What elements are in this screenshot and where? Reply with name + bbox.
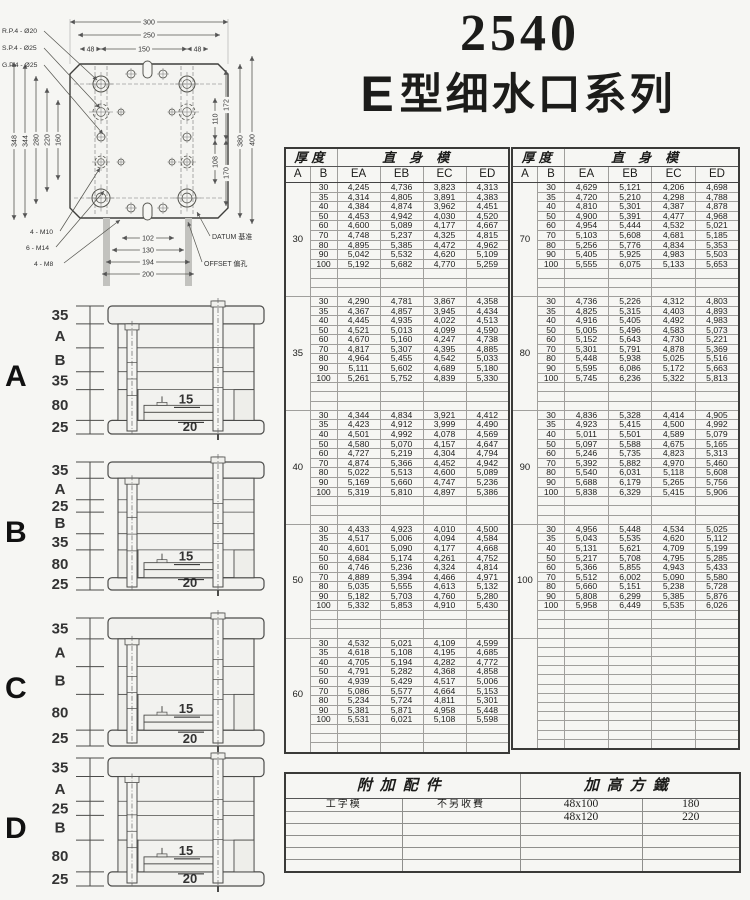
- price-cell: 80: [537, 582, 564, 592]
- accessory-cell: 48x120: [520, 811, 642, 824]
- price-cell: 5,226: [608, 296, 652, 306]
- a-thickness-cell: 80: [512, 296, 537, 410]
- plate-dim-label: 35: [52, 620, 69, 637]
- price-cell: 4,452: [423, 458, 466, 468]
- price-cell: 4,445: [337, 316, 380, 326]
- price-cell: 70: [537, 572, 564, 582]
- plate-dim-label: 80: [52, 848, 69, 865]
- price-cell: 5,086: [337, 686, 380, 696]
- price-cell: 5,118: [652, 468, 696, 478]
- price-cell: 5,033: [466, 354, 509, 364]
- empty-cell: [695, 287, 739, 296]
- price-cell: 40: [310, 657, 337, 667]
- table-row: [512, 647, 739, 656]
- price-cell: 5,512: [565, 572, 609, 582]
- price-cell: 5,386: [466, 487, 509, 497]
- price-cell: [652, 730, 696, 739]
- price-cell: 4,580: [337, 439, 380, 449]
- price-cell: 40: [310, 430, 337, 440]
- empty-cell: [423, 611, 466, 620]
- price-cell: 5,588: [608, 439, 652, 449]
- table-row: 60304,5325,0214,1094,599: [285, 638, 509, 648]
- price-cell: 3,867: [423, 296, 466, 306]
- page-title-series: E型细水口系列: [292, 60, 744, 123]
- price-cell: 4,788: [695, 192, 739, 202]
- dim-text: 172: [223, 99, 230, 111]
- price-cell: 4,814: [466, 563, 509, 573]
- hole-callout: S.P.4 - Ø25: [2, 45, 37, 52]
- filler-row: [285, 611, 509, 620]
- dim-text: 150: [138, 46, 150, 53]
- table-row: 35304,2904,7813,8674,358: [285, 296, 509, 306]
- price-cell: 40: [537, 202, 564, 212]
- price-cell: 3,999: [423, 420, 466, 430]
- price-cell: [537, 693, 564, 702]
- price-cell: 4,590: [466, 325, 509, 335]
- price-cell: [608, 684, 652, 693]
- header-row-groups: 厚度直身模: [512, 148, 739, 167]
- price-cell: [652, 638, 696, 647]
- price-cell: 100: [537, 373, 564, 383]
- price-cell: 5,090: [652, 572, 696, 582]
- plate-dim-label: 25: [52, 871, 69, 888]
- mold-section-svg: 35AB80251520: [14, 610, 286, 762]
- price-cell: 90: [310, 250, 337, 260]
- plate-dim-label: A: [55, 481, 66, 498]
- price-cell: 4,312: [652, 296, 696, 306]
- price-cell: 5,513: [380, 468, 423, 478]
- price-cell: 4,885: [466, 344, 509, 354]
- price-cell: 4,314: [337, 192, 380, 202]
- price-cell: [608, 657, 652, 666]
- table-row: 504,5215,0134,0994,590: [285, 325, 509, 335]
- price-cell: [537, 647, 564, 656]
- price-cell: 5,540: [565, 468, 609, 478]
- empty-cell: [565, 392, 609, 401]
- price-cell: 4,752: [466, 553, 509, 563]
- table-row: 804,8955,3854,4724,962: [285, 240, 509, 250]
- filler-row: [512, 401, 739, 410]
- price-cell: 5,855: [608, 563, 652, 573]
- price-cell: 30: [310, 296, 337, 306]
- price-cell: [565, 721, 609, 730]
- accessory-cell: [642, 836, 740, 848]
- price-cell: [652, 721, 696, 730]
- empty-cell: [565, 611, 609, 620]
- price-cell: 4,157: [423, 439, 466, 449]
- inner-dim-20: 20: [183, 871, 197, 886]
- price-cell: [537, 702, 564, 711]
- empty-cell: [310, 383, 337, 392]
- a-thickness-cell: 70: [512, 183, 537, 297]
- plate-dim-label: 25: [52, 498, 69, 515]
- price-cell: 5,217: [565, 553, 609, 563]
- price-cell: [695, 712, 739, 721]
- empty-cell: [380, 497, 423, 506]
- price-cell: 70: [537, 344, 564, 354]
- table-row: 404,5014,9924,0784,569: [285, 430, 509, 440]
- price-cell: 5,415: [652, 487, 696, 497]
- price-cell: 6,075: [608, 259, 652, 269]
- empty-cell: [652, 506, 696, 515]
- plate-dim-label: A: [55, 781, 66, 798]
- accessory-cell: 220: [642, 811, 740, 824]
- price-cell: 90: [537, 591, 564, 601]
- price-cell: 5,073: [695, 325, 739, 335]
- price-cell: 4,520: [466, 211, 509, 221]
- empty-cell: [380, 383, 423, 392]
- empty-cell: [466, 515, 509, 524]
- plate-dim-label: 35: [52, 759, 69, 776]
- price-cell: [652, 647, 696, 656]
- empty-cell: [423, 743, 466, 753]
- dim-text: 48: [87, 46, 95, 53]
- empty-cell: [466, 383, 509, 392]
- price-cell: 60: [310, 335, 337, 345]
- empty-cell: [466, 506, 509, 515]
- price-cell: 40: [310, 543, 337, 553]
- price-cell: 5,394: [380, 572, 423, 582]
- price-cell: 5,042: [337, 250, 380, 260]
- table-row: 504,7915,2824,3684,858: [285, 667, 509, 677]
- empty-cell: [695, 383, 739, 392]
- dim-text: 200: [142, 271, 154, 278]
- price-cell: 4,290: [337, 296, 380, 306]
- table-row: 905,5956,0865,1725,663: [512, 364, 739, 374]
- empty-cell: [695, 269, 739, 278]
- plate-dim-label: 35: [52, 462, 69, 479]
- empty-cell: [337, 401, 380, 410]
- inner-dim-20: 20: [183, 575, 197, 590]
- price-cell: 5,608: [695, 468, 739, 478]
- empty-cell: [652, 269, 696, 278]
- price-cell: [537, 657, 564, 666]
- price-cell: 35: [310, 192, 337, 202]
- empty-cell: [310, 401, 337, 410]
- price-cell: [652, 675, 696, 684]
- price-cell: 5,433: [695, 563, 739, 573]
- price-cell: 4,490: [466, 420, 509, 430]
- price-cell: 60: [310, 221, 337, 231]
- table-row: 405,1315,6214,7095,199: [512, 543, 739, 553]
- dim-text: 400: [249, 134, 256, 146]
- price-cell: 5,194: [380, 657, 423, 667]
- price-cell: 4,912: [380, 420, 423, 430]
- price-cell: 35: [310, 648, 337, 658]
- thread-callout: 4 - M10: [30, 229, 53, 236]
- price-cell: [565, 739, 609, 749]
- table-row: 905,1695,6604,7475,236: [285, 477, 509, 487]
- empty-cell: [608, 269, 652, 278]
- price-cell: 4,383: [466, 192, 509, 202]
- price-cell: 4,954: [565, 221, 609, 231]
- price-cell: [608, 647, 652, 656]
- price-cell: 6,086: [608, 364, 652, 374]
- price-cell: 5,301: [608, 202, 652, 212]
- price-cell: 5,791: [608, 344, 652, 354]
- price-cell: 5,366: [380, 458, 423, 468]
- table-row: 905,0425,5324,6205,109: [285, 250, 509, 260]
- filler-row: [285, 734, 509, 743]
- price-cell: 30: [310, 638, 337, 648]
- price-cell: 5,708: [608, 553, 652, 563]
- price-cell: [537, 666, 564, 675]
- accessory-cell: [642, 824, 740, 836]
- price-cell: [695, 730, 739, 739]
- table-row: 604,7465,2364,3244,814: [285, 563, 509, 573]
- inner-dim-15: 15: [179, 843, 193, 858]
- price-cell: 5,810: [380, 487, 423, 497]
- price-cell: 5,261: [337, 373, 380, 383]
- header-row-cols: ABEAEBECED: [285, 167, 509, 183]
- price-cell: 3,921: [423, 410, 466, 420]
- price-cell: 40: [310, 316, 337, 326]
- dim-text: 130: [142, 247, 154, 254]
- price-cell: 5,660: [565, 582, 609, 592]
- filler-row: [512, 629, 739, 638]
- empty-cell: [380, 278, 423, 287]
- price-cell: 4,738: [466, 335, 509, 345]
- empty-cell: [310, 743, 337, 753]
- empty-cell: [466, 497, 509, 506]
- price-cell: 80: [310, 240, 337, 250]
- price-cell: 4,206: [652, 183, 696, 193]
- empty-cell: [423, 620, 466, 629]
- price-cell: [608, 675, 652, 684]
- price-cell: 5,174: [380, 553, 423, 563]
- price-cell: 5,501: [608, 430, 652, 440]
- spacer-block-right: [234, 550, 254, 578]
- price-cell: 5,315: [608, 306, 652, 316]
- table-row: 80304,7365,2264,3124,803: [512, 296, 739, 306]
- price-cell: 6,449: [608, 601, 652, 611]
- price-cell: 4,900: [565, 211, 609, 221]
- price-cell: 4,298: [652, 192, 696, 202]
- price-cell: 5,021: [380, 638, 423, 648]
- empty-cell: [608, 383, 652, 392]
- price-cell: 5,332: [337, 601, 380, 611]
- empty-cell: [608, 401, 652, 410]
- table-row: 605,2465,7354,8235,313: [512, 449, 739, 459]
- price-cell: 4,109: [423, 638, 466, 648]
- empty-cell: [310, 278, 337, 287]
- price-cell: 4,727: [337, 449, 380, 459]
- table-row: 354,8255,3154,4034,893: [512, 306, 739, 316]
- col-header-price: EB: [608, 167, 652, 183]
- price-cell: 4,664: [423, 686, 466, 696]
- price-cell: [565, 693, 609, 702]
- price-cell: 4,324: [423, 563, 466, 573]
- price-cell: 5,013: [380, 325, 423, 335]
- price-cell: 5,089: [380, 221, 423, 231]
- price-cell: 4,451: [466, 202, 509, 212]
- price-cell: 5,813: [695, 373, 739, 383]
- accessory-row: 工字模不另收費48x100180: [285, 799, 740, 812]
- stop-pin-head: [157, 712, 167, 715]
- table-row: 805,6605,1515,2385,728: [512, 582, 739, 592]
- empty-cell: [537, 383, 564, 392]
- price-cell: 35: [537, 192, 564, 202]
- empty-cell: [695, 506, 739, 515]
- price-cell: 40: [537, 316, 564, 326]
- price-cell: 4,501: [337, 430, 380, 440]
- price-cell: 4,874: [337, 458, 380, 468]
- empty-cell: [423, 383, 466, 392]
- price-cell: [695, 684, 739, 693]
- price-cell: 5,236: [466, 477, 509, 487]
- price-cell: 5,391: [608, 211, 652, 221]
- accessory-row: [285, 824, 740, 836]
- price-cell: 80: [310, 468, 337, 478]
- price-cell: 4,689: [423, 364, 466, 374]
- empty-cell: [652, 611, 696, 620]
- price-cell: 5,405: [565, 250, 609, 260]
- price-cell: 5,265: [652, 477, 696, 487]
- price-cell: 70: [537, 230, 564, 240]
- price-cell: [565, 675, 609, 684]
- price-cell: 4,910: [423, 601, 466, 611]
- thickness-block: 70304,6295,1214,2064,698354,7205,2104,29…: [512, 183, 739, 297]
- a-thickness-cell: 90: [512, 410, 537, 524]
- dim-text: 380: [237, 135, 244, 147]
- price-cell: 4,795: [652, 553, 696, 563]
- accessory-row: 48x120220: [285, 811, 740, 824]
- filler-row: [285, 515, 509, 524]
- price-cell: 4,099: [423, 325, 466, 335]
- inner-dim-20: 20: [183, 731, 197, 746]
- price-cell: 5,577: [380, 686, 423, 696]
- price-cell: 4,781: [380, 296, 423, 306]
- filler-row: [285, 629, 509, 638]
- sprue-slot-bottom: [143, 203, 152, 220]
- empty-cell: [608, 392, 652, 401]
- filler-row: [512, 515, 739, 524]
- plate-technical-drawing: 3002504815048348344280220160110108172170…: [0, 6, 290, 296]
- table-row: 805,2345,7244,8115,301: [285, 696, 509, 706]
- filler-row: [285, 401, 509, 410]
- thickness-block: 50304,4334,9234,0104,500354,5175,0064,09…: [285, 524, 509, 638]
- table-row: 90304,8365,3284,4144,905: [512, 410, 739, 420]
- price-cell: 4,836: [565, 410, 609, 420]
- empty-cell: [423, 269, 466, 278]
- mold-section-svg: 35AB3580251520: [14, 298, 286, 450]
- price-cell: 5,109: [466, 250, 509, 260]
- mold-diagram-d: D35A25B80251520: [14, 750, 286, 900]
- price-cell: 5,108: [380, 648, 423, 658]
- price-cell: 4,817: [337, 344, 380, 354]
- price-cell: 5,035: [337, 582, 380, 592]
- price-cell: [565, 730, 609, 739]
- price-cell: 60: [310, 449, 337, 459]
- empty-cell: [337, 743, 380, 753]
- empty-cell: [537, 611, 564, 620]
- price-cell: [695, 638, 739, 647]
- empty-cell: [337, 506, 380, 515]
- accessory-header-row: 附加配件加高方鐵: [285, 773, 740, 799]
- price-cell: 70: [310, 458, 337, 468]
- empty-cell: [608, 287, 652, 296]
- empty-cell: [565, 515, 609, 524]
- price-cell: 4,395: [423, 344, 466, 354]
- empty-cell: [337, 734, 380, 743]
- dim-text: 194: [142, 259, 154, 266]
- price-cell: 5,430: [466, 601, 509, 611]
- price-cell: 4,620: [652, 534, 696, 544]
- accessory-cell: 工字模: [285, 799, 402, 812]
- table-row: 100304,9565,4484,5345,025: [512, 524, 739, 534]
- price-cell: [652, 702, 696, 711]
- price-cell: 4,760: [423, 591, 466, 601]
- price-cell: 4,923: [380, 524, 423, 534]
- empty-cell: [380, 620, 423, 629]
- price-cell: 4,746: [337, 563, 380, 573]
- price-cell: [608, 666, 652, 675]
- price-cell: 5,503: [695, 250, 739, 260]
- filler-row: [512, 287, 739, 296]
- empty-cell: [380, 724, 423, 733]
- price-cell: 4,472: [423, 240, 466, 250]
- price-cell: 80: [537, 354, 564, 364]
- price-cell: 5,838: [565, 487, 609, 497]
- price-cell: [608, 693, 652, 702]
- price-cell: 4,384: [337, 202, 380, 212]
- price-cell: 5,660: [380, 477, 423, 487]
- accessory-row: [285, 848, 740, 860]
- filler-row: [512, 497, 739, 506]
- price-cell: 50: [537, 325, 564, 335]
- price-cell: 5,006: [380, 534, 423, 544]
- price-cell: [652, 684, 696, 693]
- empty-cell: [695, 515, 739, 524]
- empty-cell: [565, 401, 609, 410]
- price-cell: 60: [537, 449, 564, 459]
- table-row: 1005,1925,6824,7705,259: [285, 259, 509, 269]
- plate-dim-label: 80: [52, 556, 69, 573]
- table-row: 1005,3195,8104,8975,386: [285, 487, 509, 497]
- price-cell: 4,825: [565, 306, 609, 316]
- table-row: [512, 721, 739, 730]
- table-row: 604,9395,4294,5175,006: [285, 677, 509, 687]
- price-cell: 4,747: [423, 477, 466, 487]
- empty-cell: [466, 392, 509, 401]
- price-cell: 4,247: [423, 335, 466, 345]
- plate-dim-label: B: [55, 673, 66, 690]
- accessory-cell: [402, 836, 520, 848]
- table-row: 604,6705,1604,2474,738: [285, 335, 509, 345]
- price-cell: [695, 666, 739, 675]
- price-cell: 5,089: [466, 468, 509, 478]
- plate-dim-label: 35: [52, 307, 69, 324]
- price-cell: 4,705: [337, 657, 380, 667]
- price-cell: 4,874: [380, 202, 423, 212]
- empty-cell: [466, 629, 509, 638]
- price-cell: 4,772: [466, 657, 509, 667]
- price-cell: 4,736: [565, 296, 609, 306]
- price-cell: [695, 739, 739, 749]
- price-cell: 5,608: [608, 230, 652, 240]
- price-cell: 5,097: [565, 439, 609, 449]
- table-row: 705,5126,0025,0905,580: [512, 572, 739, 582]
- price-cell: 3,823: [423, 183, 466, 193]
- table-row: 805,4485,9385,0255,516: [512, 354, 739, 364]
- price-cell: 4,684: [337, 553, 380, 563]
- price-cell: 4,613: [423, 582, 466, 592]
- price-cell: 4,500: [652, 420, 696, 430]
- table-row: 605,3665,8554,9435,433: [512, 563, 739, 573]
- dim-text: 108: [212, 156, 219, 168]
- price-cell: 5,366: [565, 563, 609, 573]
- price-cell: 50: [310, 553, 337, 563]
